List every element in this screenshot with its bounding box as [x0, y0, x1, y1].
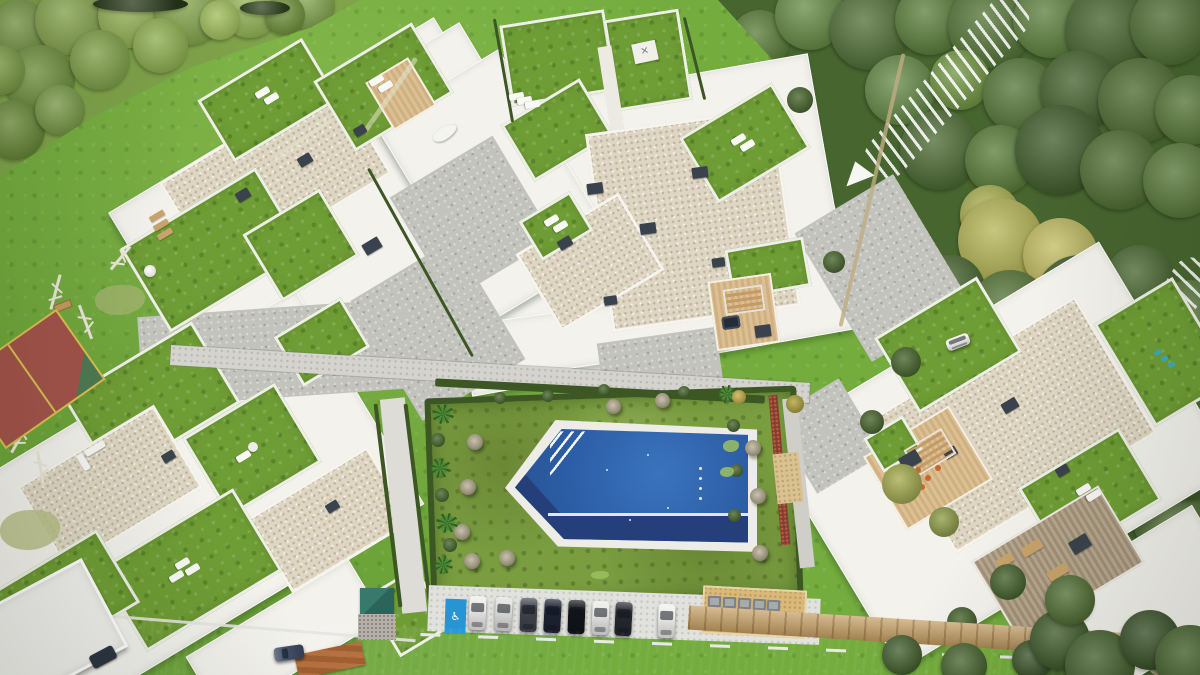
stream-whitewater-top	[857, 0, 1038, 187]
vent	[1000, 396, 1019, 414]
lounger	[184, 562, 200, 576]
tree	[0, 100, 45, 160]
vent	[324, 499, 340, 513]
tree	[285, 0, 335, 30]
tan	[1020, 538, 1044, 558]
sofa	[84, 439, 106, 456]
lounger	[508, 91, 524, 100]
tree	[965, 125, 1035, 195]
lounger	[174, 556, 190, 570]
vent	[353, 123, 368, 137]
teal-roof-shed	[360, 588, 394, 614]
vent	[586, 181, 603, 194]
tree	[1098, 58, 1183, 143]
vent	[898, 449, 922, 471]
vent	[1068, 533, 1092, 555]
shrub	[882, 464, 922, 504]
lawn	[501, 78, 614, 182]
vent	[296, 152, 313, 168]
tree	[915, 255, 985, 325]
vent	[361, 236, 383, 256]
orange	[925, 475, 931, 481]
lounger	[235, 449, 251, 463]
wheelchair-icon: ♿	[450, 610, 460, 623]
lawn	[242, 188, 359, 301]
lounger	[368, 73, 384, 87]
shrub	[891, 347, 921, 377]
lounger	[254, 85, 270, 99]
tree	[220, 0, 280, 38]
roof	[158, 77, 391, 279]
roof	[17, 405, 204, 570]
aerial-photo: ✕ ♿	[0, 0, 1200, 675]
roof	[585, 108, 801, 332]
pergola	[903, 428, 956, 476]
lounger	[524, 99, 540, 108]
lounger	[1085, 488, 1101, 502]
tree	[1025, 415, 1095, 485]
lawn	[679, 83, 811, 204]
tree	[1070, 440, 1150, 520]
building-central-west-wing	[374, 49, 617, 321]
stream-whitewater-right	[1077, 250, 1200, 445]
tan	[995, 552, 1015, 569]
lawn	[603, 9, 692, 112]
tree	[200, 0, 240, 40]
vent	[691, 165, 708, 178]
tan	[157, 227, 174, 240]
vent	[160, 449, 176, 463]
sofa	[75, 452, 90, 471]
baretree	[109, 246, 131, 271]
walkway-left	[380, 397, 427, 613]
vent	[556, 235, 573, 251]
tree	[133, 18, 188, 73]
lawn	[120, 167, 306, 332]
fence	[682, 16, 705, 99]
shrub	[860, 410, 884, 434]
vent	[639, 221, 656, 234]
trail	[362, 57, 418, 134]
deck	[365, 57, 437, 131]
tree	[1050, 520, 1130, 600]
tree	[1035, 255, 1125, 345]
lawn	[197, 38, 339, 163]
lounger	[543, 213, 559, 227]
lounger	[739, 138, 755, 152]
vent	[603, 295, 617, 306]
gravel-pad	[358, 614, 396, 640]
tree	[1150, 420, 1200, 500]
lawn	[182, 383, 322, 517]
lawn	[724, 236, 811, 299]
tree	[0, 0, 50, 60]
pool-steps	[550, 431, 592, 475]
lounger	[168, 569, 184, 583]
swimming-pool	[515, 429, 748, 546]
tree	[775, 0, 845, 50]
tan	[153, 218, 170, 231]
building-central	[424, 53, 857, 396]
teal	[1167, 360, 1176, 368]
shrub	[823, 251, 845, 273]
tree	[5, 45, 75, 115]
tree	[93, 0, 188, 12]
baretree	[36, 451, 45, 485]
tree	[730, 10, 790, 70]
tree	[970, 270, 1050, 350]
tree	[1080, 130, 1160, 210]
roof	[515, 193, 664, 332]
tree	[0, 45, 25, 95]
sports-court	[0, 309, 106, 449]
plaza	[390, 136, 555, 301]
tree	[1155, 75, 1200, 145]
orange	[919, 484, 925, 490]
deck	[863, 405, 993, 530]
tree	[1143, 143, 1200, 218]
fence	[367, 167, 474, 356]
lawn	[313, 22, 454, 152]
moss	[95, 285, 145, 315]
lawn	[874, 276, 1022, 413]
tree	[98, 0, 163, 48]
shrub	[929, 507, 959, 537]
building-northwest-wing	[360, 22, 544, 223]
lounger	[516, 95, 532, 104]
tree	[35, 85, 85, 135]
tree	[265, 0, 305, 35]
tree	[70, 30, 130, 90]
tree	[155, 0, 225, 45]
lounger	[552, 219, 568, 233]
tree	[35, 0, 105, 55]
tree	[1133, 483, 1200, 558]
dish	[144, 265, 156, 277]
table	[248, 442, 258, 452]
tree	[1040, 50, 1120, 130]
tree	[983, 58, 1058, 133]
pool-lane-line	[548, 513, 748, 516]
tree	[1045, 575, 1095, 625]
lawn	[863, 415, 923, 473]
plaza	[351, 239, 526, 421]
fence	[492, 18, 513, 122]
lawn	[518, 191, 593, 261]
tree	[1130, 0, 1200, 65]
vent	[942, 445, 958, 459]
lounger	[263, 91, 279, 105]
boat	[431, 121, 459, 145]
lounger	[377, 79, 393, 93]
tree	[1015, 105, 1105, 195]
plaza	[794, 174, 970, 362]
lawn	[499, 9, 617, 107]
lounger	[1075, 482, 1091, 496]
shade-anchor-pad: ✕	[631, 40, 659, 65]
deck	[707, 273, 780, 351]
tree	[240, 1, 290, 15]
vent	[711, 257, 725, 268]
shrub	[990, 564, 1026, 600]
lounger	[730, 132, 746, 146]
tree	[960, 185, 1020, 245]
vent	[754, 324, 772, 338]
lawn	[63, 321, 241, 480]
tree	[1023, 218, 1098, 293]
baretree	[77, 305, 92, 340]
tree	[983, 343, 1058, 418]
vent	[234, 187, 251, 203]
hottub	[721, 314, 741, 329]
tree	[1065, 0, 1155, 75]
pathw	[597, 45, 624, 131]
tan	[149, 209, 166, 222]
pergola	[722, 284, 765, 315]
tree	[830, 0, 910, 70]
tan	[1046, 562, 1070, 582]
rooftop-car	[945, 332, 972, 352]
shrub	[787, 87, 813, 113]
moss	[0, 510, 60, 550]
lawn	[1018, 428, 1162, 561]
orange	[915, 467, 921, 473]
slope-footpath	[839, 53, 906, 327]
trail	[272, 118, 332, 161]
tree	[958, 198, 1043, 283]
baretree	[49, 274, 61, 310]
building-northwest	[108, 17, 542, 393]
orange	[935, 465, 941, 471]
vent	[1054, 463, 1070, 477]
